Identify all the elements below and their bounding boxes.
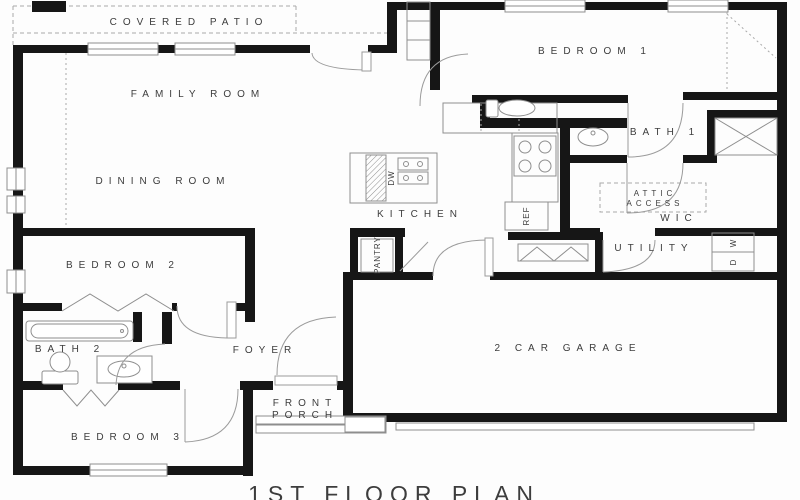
linen-closet xyxy=(407,2,430,60)
window xyxy=(7,270,25,293)
coat-closet xyxy=(518,244,588,261)
bath2-toilet xyxy=(42,352,78,384)
garage-label: 2 CAR GARAGE xyxy=(494,343,641,354)
window xyxy=(90,464,167,476)
dishwasher-label: DW xyxy=(387,170,396,185)
bath1-label: BATH 1 xyxy=(630,127,700,138)
bath1-toilet xyxy=(486,100,535,117)
bedroom1-door xyxy=(420,54,468,106)
garage-door xyxy=(396,423,754,430)
pantry-label: PANTRY xyxy=(373,236,382,274)
floor-plan: COVERED PATIO FAMILY ROOM DINING ROOM KI… xyxy=(0,0,800,500)
wic-label: WIC xyxy=(660,213,697,224)
patio-post xyxy=(32,1,66,12)
window xyxy=(668,0,728,12)
bedroom2-door xyxy=(177,302,236,338)
shower xyxy=(715,118,777,155)
refrigerator-label: REF xyxy=(522,207,531,226)
bedroom3-door xyxy=(185,389,238,442)
bathtub xyxy=(26,321,133,341)
plan-title: 1ST FLOOR PLAN xyxy=(248,481,540,500)
foyer-label: FOYER xyxy=(233,345,297,356)
front-porch-label-line2: PORCH xyxy=(272,410,338,421)
window xyxy=(7,196,25,213)
bedroom2-closet-bifold xyxy=(62,294,174,311)
family-room-label: FAMILY ROOM xyxy=(131,89,266,100)
stove xyxy=(514,136,556,176)
bedroom1-label: BEDROOM 1 xyxy=(538,46,652,57)
dryer-label: D xyxy=(729,259,738,266)
bath2-label: BATH 2 xyxy=(35,344,105,355)
attic-access-label-line2: ACCESS xyxy=(627,199,684,208)
window xyxy=(505,0,585,12)
patio-door xyxy=(312,52,371,71)
utility-label: UTILITY xyxy=(614,243,693,254)
garage-entry-door xyxy=(433,238,493,276)
pantry-closet xyxy=(361,239,428,272)
kitchen-counter xyxy=(443,103,558,202)
dining-room-label: DINING ROOM xyxy=(96,176,231,187)
bedroom3-closet-bifold xyxy=(63,390,119,406)
washer-label: W xyxy=(729,239,738,248)
bedroom2-label: BEDROOM 2 xyxy=(66,260,180,271)
covered-patio-label: COVERED PATIO xyxy=(110,17,269,28)
window xyxy=(88,43,158,55)
window xyxy=(7,168,25,190)
window xyxy=(175,43,235,55)
kitchen-label: KITCHEN xyxy=(377,209,463,220)
bath1-sink xyxy=(578,128,608,146)
front-porch-label-line1: FRONT xyxy=(273,398,337,409)
bedroom3-label: BEDROOM 3 xyxy=(71,432,185,443)
tray-ceiling-diagonal xyxy=(727,14,776,58)
attic-access-label-line1: ATTIC xyxy=(634,189,677,198)
